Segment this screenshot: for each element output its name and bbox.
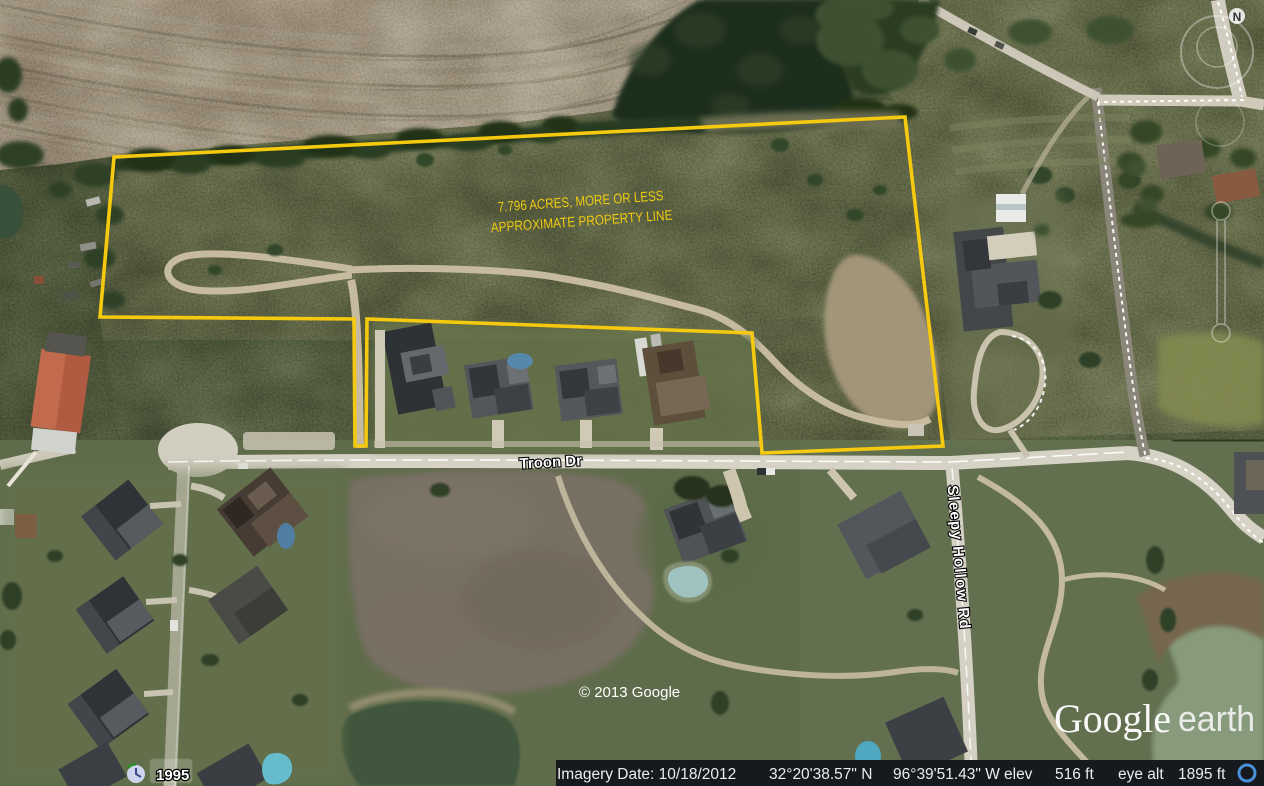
svg-text:Troon Dr: Troon Dr bbox=[519, 452, 582, 472]
svg-text:1995: 1995 bbox=[156, 767, 189, 784]
svg-text:© 2013 Google: © 2013 Google bbox=[579, 684, 680, 701]
svg-text:N: N bbox=[1233, 10, 1242, 24]
svg-text:earth: earth bbox=[1178, 698, 1255, 739]
svg-text:Google: Google bbox=[1054, 696, 1171, 741]
